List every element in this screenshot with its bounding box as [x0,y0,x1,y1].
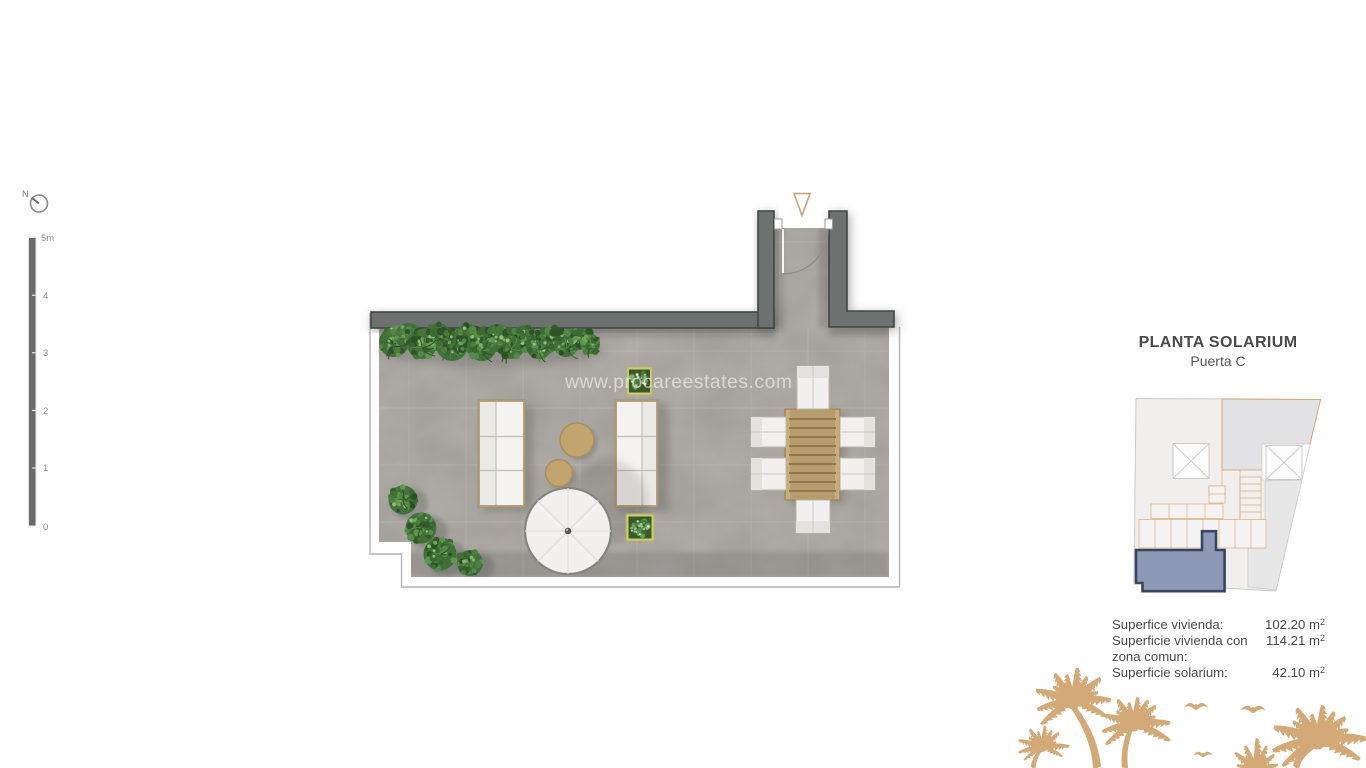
svg-text:N: N [22,189,29,199]
svg-text:2: 2 [43,406,48,417]
svg-text:4: 4 [43,291,48,302]
svg-text:1: 1 [43,463,48,474]
svg-text:0: 0 [43,522,48,533]
svg-text:5m: 5m [41,233,54,244]
svg-text:3: 3 [43,348,48,359]
